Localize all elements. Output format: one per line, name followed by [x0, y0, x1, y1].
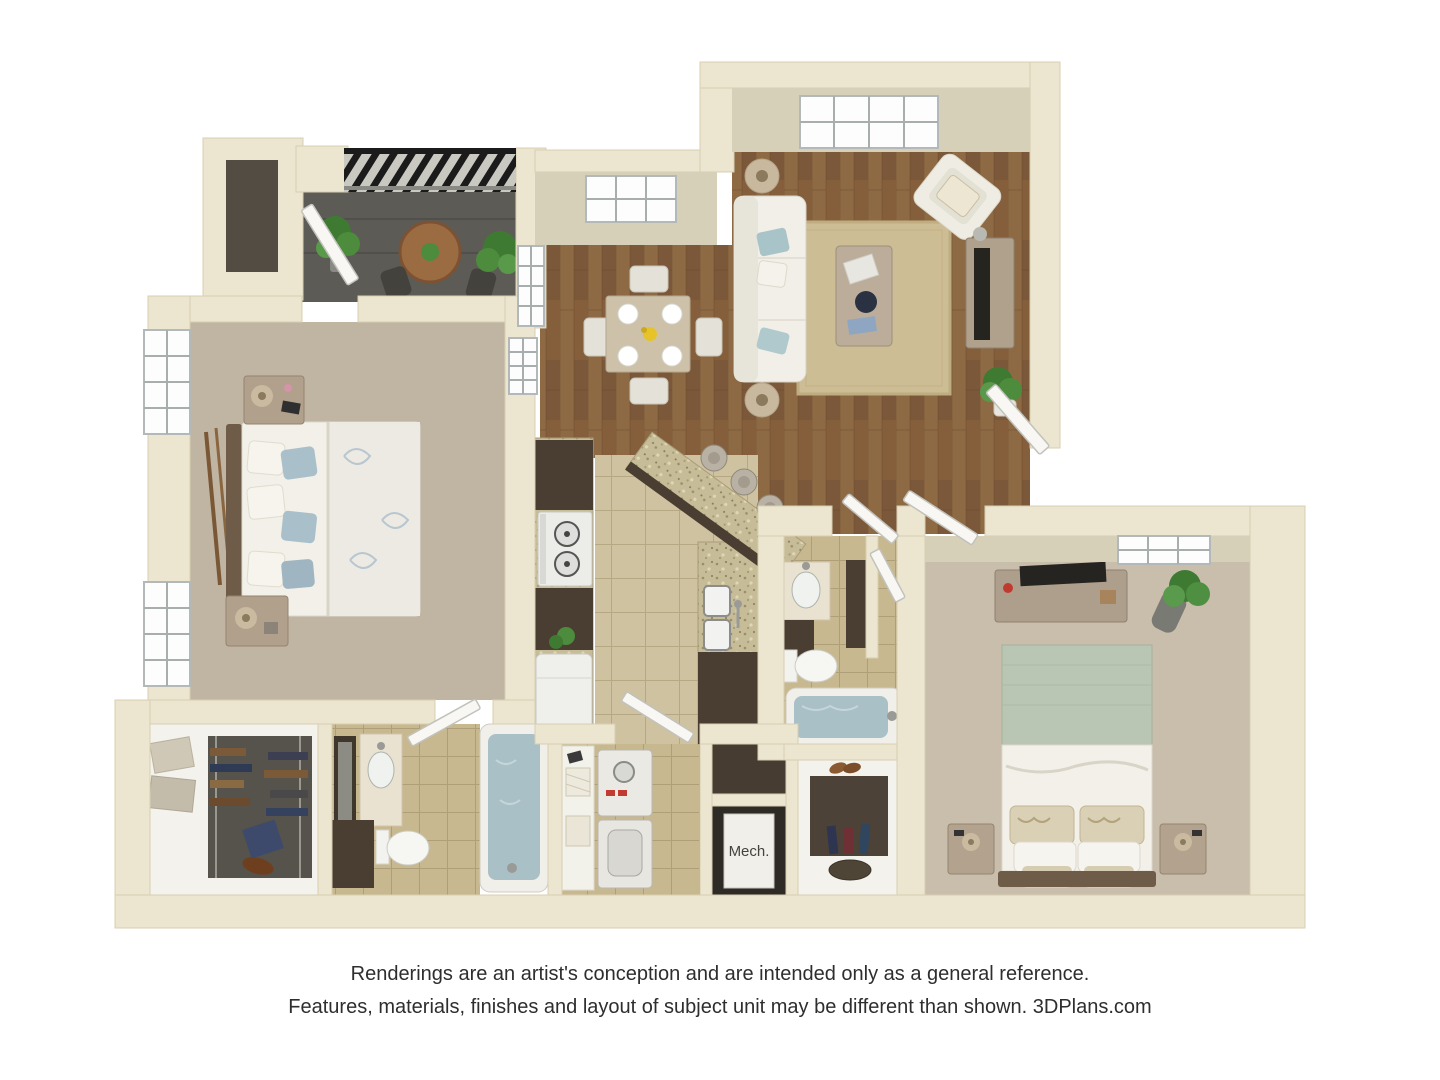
vanity-cabinet — [332, 820, 374, 888]
washer — [598, 750, 652, 816]
plate — [618, 304, 638, 324]
right-outer-wall — [1250, 506, 1305, 928]
blue-pillow — [281, 510, 318, 543]
white-pillow — [246, 484, 285, 520]
mech-room: Mech. — [724, 814, 774, 888]
plate — [618, 346, 638, 366]
range-stove — [538, 512, 592, 586]
tub-faucet — [887, 711, 897, 721]
disclaimer-line-1: Renderings are an artist's conception an… — [0, 958, 1440, 991]
headboard — [226, 424, 242, 614]
left-outer-wall-lower — [115, 700, 150, 928]
living-window — [800, 96, 938, 148]
tv-console — [966, 227, 1014, 348]
bedroom2-window — [1118, 536, 1210, 564]
coffee-table — [836, 246, 892, 346]
patterned-pillow — [1080, 806, 1144, 844]
column-hollow — [226, 160, 278, 272]
nightstand — [226, 596, 288, 646]
bottom-outer-wall — [115, 895, 1305, 928]
sink — [792, 572, 820, 608]
toilet-bowl — [387, 831, 429, 865]
headboard — [998, 871, 1156, 887]
patterned-pillow — [1010, 806, 1074, 844]
floor-lamp — [745, 383, 779, 417]
hanging-garment — [844, 828, 853, 854]
storage-box — [148, 776, 195, 812]
table-plant — [421, 243, 439, 261]
plate — [662, 346, 682, 366]
flower-vase — [284, 384, 292, 392]
tub-faucet — [507, 863, 517, 873]
dark-cabinet — [533, 440, 593, 510]
red-decor — [1003, 583, 1013, 593]
dining-window — [586, 176, 676, 222]
dining-chair — [696, 318, 722, 356]
folded-towels — [566, 768, 590, 796]
folded-towels — [566, 816, 590, 846]
decor-item — [264, 622, 278, 634]
tub-water — [488, 734, 540, 880]
dining-side-window — [518, 246, 544, 326]
faucet — [802, 562, 810, 570]
green-blanket — [1002, 645, 1152, 745]
storage-box — [150, 737, 195, 773]
bathtub — [480, 724, 548, 892]
mech-room-label: Mech. — [729, 843, 770, 860]
living-right-wall — [1030, 62, 1060, 448]
small-lamp — [973, 227, 987, 241]
dryer — [598, 820, 652, 888]
faucet — [377, 742, 385, 750]
tv-screen — [974, 248, 990, 340]
plate — [662, 304, 682, 324]
floor-lamp — [745, 159, 779, 193]
dining-chair — [630, 266, 668, 292]
dining-side-window — [509, 338, 537, 394]
disclaimer: Renderings are an artist's conception an… — [0, 958, 1440, 1024]
bedroom1-window — [144, 330, 190, 434]
floor-plan-rendering: Mech. — [0, 0, 1440, 1080]
white-pillow — [247, 440, 286, 475]
nightstand — [244, 376, 304, 424]
tall-cabinet — [846, 560, 866, 648]
nightstand — [948, 824, 994, 874]
bedroom1-window — [144, 582, 190, 686]
blue-pillow — [281, 559, 315, 590]
white-pillow — [247, 551, 285, 587]
balcony-railing — [344, 148, 516, 192]
bag — [829, 860, 871, 880]
sofa — [734, 196, 806, 382]
blue-pillow — [280, 446, 318, 480]
sink — [368, 752, 394, 788]
bathtub — [786, 688, 902, 746]
bed — [226, 422, 420, 616]
white-pillow — [756, 260, 787, 288]
dining-chair — [630, 378, 668, 404]
tub-water — [794, 696, 888, 738]
floor-plan-page: Mech. — [0, 0, 1440, 1080]
nightstand — [1160, 824, 1206, 874]
disclaimer-line-2: Features, materials, finishes and layout… — [0, 991, 1440, 1024]
decor-bowl — [855, 291, 877, 313]
dresser-tv — [995, 562, 1127, 622]
toilet-bowl — [795, 650, 837, 682]
tray — [1100, 590, 1116, 604]
bed — [998, 645, 1156, 888]
